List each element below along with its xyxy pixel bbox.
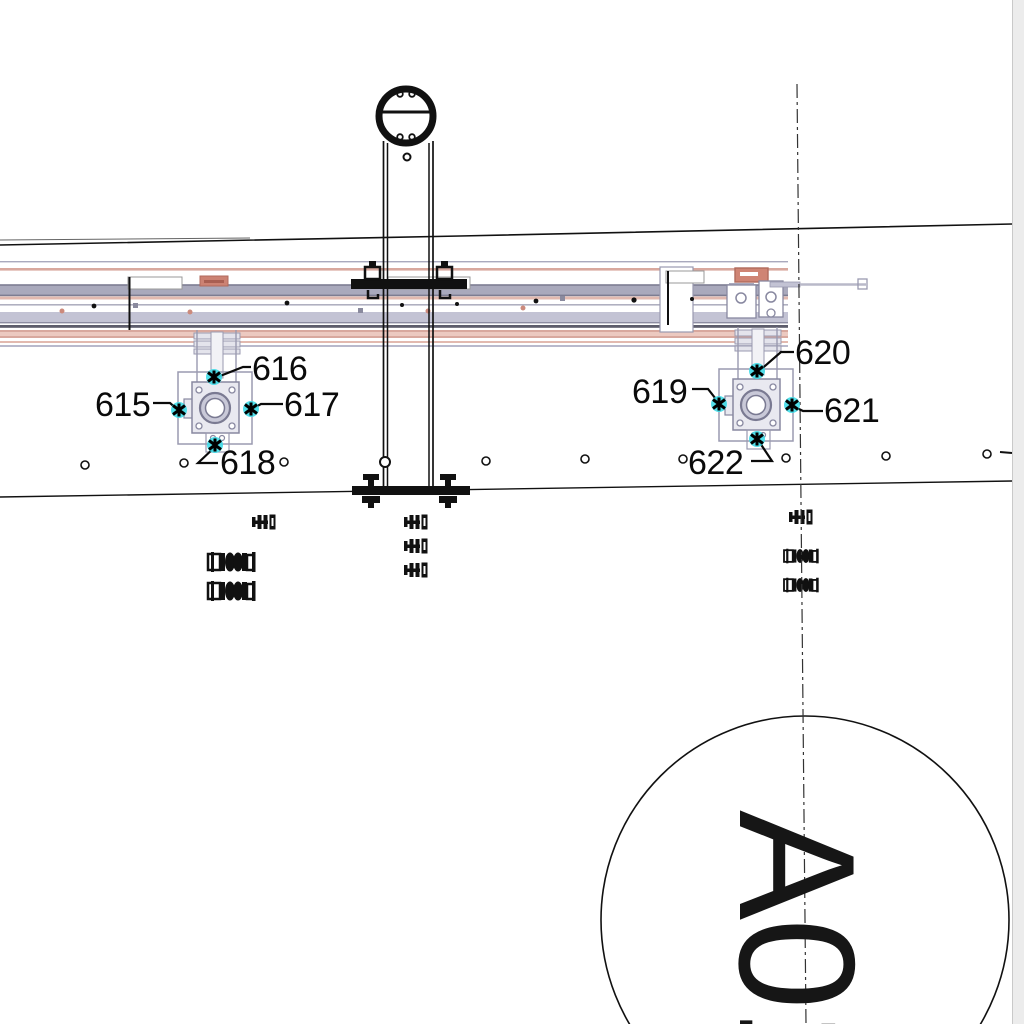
marker-620 — [749, 363, 765, 379]
callout-label-618: 618 — [220, 446, 275, 480]
marker-621 — [784, 397, 800, 413]
marker-615 — [171, 402, 187, 418]
scrollbar[interactable] — [1012, 0, 1024, 1024]
panel-edge-lines — [0, 224, 1012, 497]
callout-label-615: 615 — [95, 388, 150, 422]
rail-clip-left — [200, 276, 228, 286]
marker-622 — [749, 431, 765, 447]
callout-label-617: 617 — [284, 388, 339, 422]
callout-label-620: 620 — [795, 336, 850, 370]
marker-617 — [243, 401, 259, 417]
panel-holes — [81, 450, 991, 469]
drawing-canvas[interactable]: 615 616 617 618 619 620 621 622 A01 — [0, 0, 1024, 1024]
callout-label-619: 619 — [632, 375, 687, 409]
marker-619 — [711, 396, 727, 412]
callout-label-622: 622 — [688, 446, 743, 480]
callout-label-616: 616 — [252, 352, 307, 386]
bearing-bracket-left — [178, 330, 252, 452]
detail-balloon-label: A01 — [714, 810, 879, 1024]
loose-hardware — [208, 510, 819, 602]
rail-cap-right — [727, 268, 867, 318]
callout-label-621: 621 — [824, 394, 879, 428]
marker-616 — [206, 369, 222, 385]
